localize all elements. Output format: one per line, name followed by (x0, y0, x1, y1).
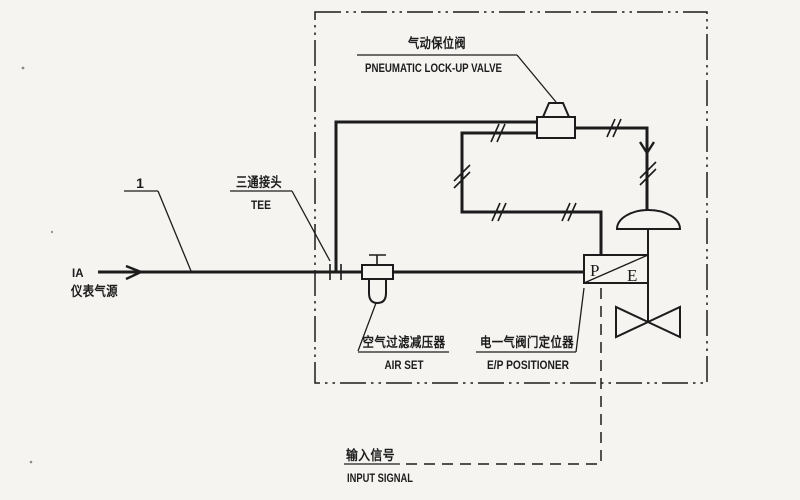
input-signal-label-cn: 输入信号 (346, 447, 395, 463)
callout-1-leader (158, 191, 191, 271)
scanned-pneumatic-diagram: P E 1 IA 仪表气源 三通接头 TEE 气动保位阀 PNEUMATIC L… (0, 0, 800, 500)
air-set-body (362, 265, 393, 279)
tee-label-cn: 三通接头 (236, 174, 282, 190)
tee-label-leader (292, 191, 330, 261)
air-set-adjust-handle (369, 255, 386, 265)
ep-positioner-label-cn: 电一气阀门定位器 (480, 334, 574, 350)
ep-positioner-label-en: E/P POSITIONER (487, 358, 569, 372)
positioner-to-lockup-pipe (462, 133, 601, 255)
input-signal-label: 输入信号 INPUT SIGNAL (344, 447, 413, 485)
scan-speck (30, 461, 33, 464)
lockup-valve-label: 气动保位阀 PNEUMATIC LOCK-UP VALVE (357, 35, 556, 102)
positioner-p-label: P (590, 261, 599, 280)
callout-1: 1 (124, 175, 191, 271)
tee-branch-pipe (336, 122, 537, 272)
input-signal-line (402, 288, 601, 464)
instrument-air-code: IA (72, 268, 84, 280)
ep-positioner-label: 电一气阀门定位器 E/P POSITIONER (476, 288, 584, 372)
air-set-label: 空气过滤减压器 AIR SET (358, 303, 449, 372)
ep-positioner-symbol: P E (584, 255, 648, 285)
lockup-valve-symbol (537, 103, 575, 138)
instrument-air-cn: 仪表气源 (70, 283, 118, 299)
callout-1-text: 1 (136, 175, 144, 191)
lockup-to-actuator-pipe (575, 128, 647, 210)
air-set-label-cn: 空气过滤减压器 (363, 334, 446, 350)
air-set-filter-bowl (369, 279, 386, 303)
air-set-symbol (362, 255, 393, 303)
ep-positioner-label-leader (576, 288, 584, 352)
input-signal-label-en: INPUT SIGNAL (347, 471, 413, 485)
scan-speck (22, 67, 25, 70)
air-set-label-en: AIR SET (385, 358, 425, 372)
lockup-valve-label-en: PNEUMATIC LOCK-UP VALVE (365, 61, 502, 75)
actuator-diaphragm-dome (617, 210, 680, 229)
lockup-valve-label-leader (517, 55, 556, 102)
positioner-e-label: E (627, 266, 637, 285)
lockup-valve-body (537, 117, 575, 138)
lockup-valve-label-cn: 气动保位阀 (407, 35, 466, 51)
tee-label-en: TEE (251, 198, 271, 212)
diagram-canvas: P E 1 IA 仪表气源 三通接头 TEE 气动保位阀 PNEUMATIC L… (0, 0, 800, 500)
lockup-valve-pilot-cap (543, 103, 569, 117)
scan-speck (51, 231, 53, 233)
